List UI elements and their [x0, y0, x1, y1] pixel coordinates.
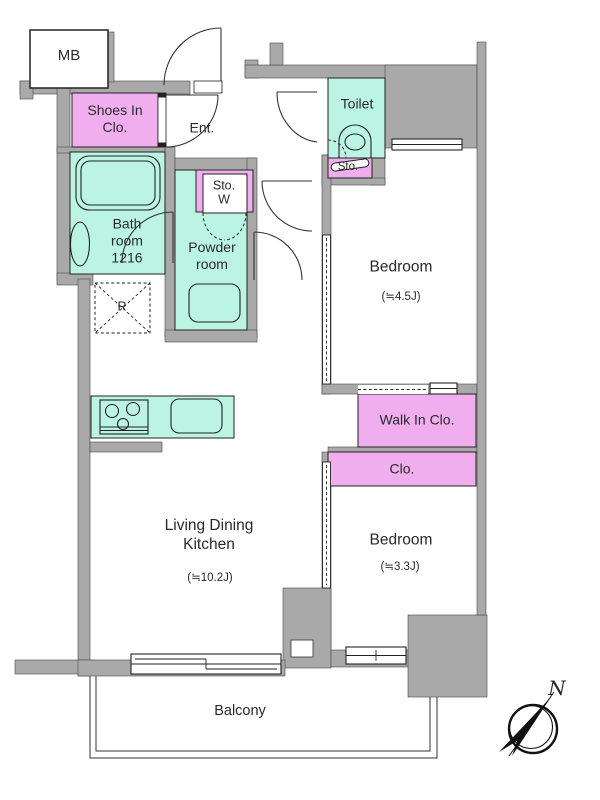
compass-icon — [499, 692, 557, 756]
storage-w-label: Sto. W — [213, 179, 235, 207]
closet-label: Clo. — [390, 460, 415, 477]
bedroom1-area: (≒4.5J) — [381, 290, 420, 304]
toilet-door — [277, 92, 317, 142]
bedroom2-label: Bedroom — [370, 532, 433, 551]
entrance-door — [164, 28, 221, 85]
ldk-label: Living Dining Kitchen — [165, 517, 254, 555]
hallway-door — [262, 181, 312, 231]
toilet-storage-label: Sto. — [338, 160, 358, 174]
ldk-area: (≒10.2J) — [187, 571, 232, 585]
bathroom-label: Bath room 1216 — [111, 215, 143, 266]
meter-box-label: MB — [58, 47, 81, 65]
toilet-label: Toilet — [341, 95, 374, 112]
powder-room-label: Powder room — [188, 239, 235, 273]
bedroom1-label: Bedroom — [370, 259, 433, 278]
compass-north-label: N — [548, 676, 566, 700]
pipe-space-notch — [291, 640, 313, 657]
shoes-closet-door — [158, 93, 166, 147]
refrigerator-label: R — [117, 299, 126, 314]
bedroom2-area: (≒3.3J) — [380, 560, 419, 574]
walk-in-closet-label: Walk In Clo. — [380, 411, 455, 428]
balcony-label: Balcony — [214, 703, 266, 721]
powder-room-door — [254, 232, 302, 280]
entrance-label: Ent. — [190, 119, 215, 136]
floor-plan: MB Shoes In Clo. Ent. Toilet Sto. Sto. W… — [0, 0, 600, 800]
toilet-room — [328, 78, 385, 158]
shoes-in-closet-label: Shoes In Clo. — [87, 102, 142, 136]
